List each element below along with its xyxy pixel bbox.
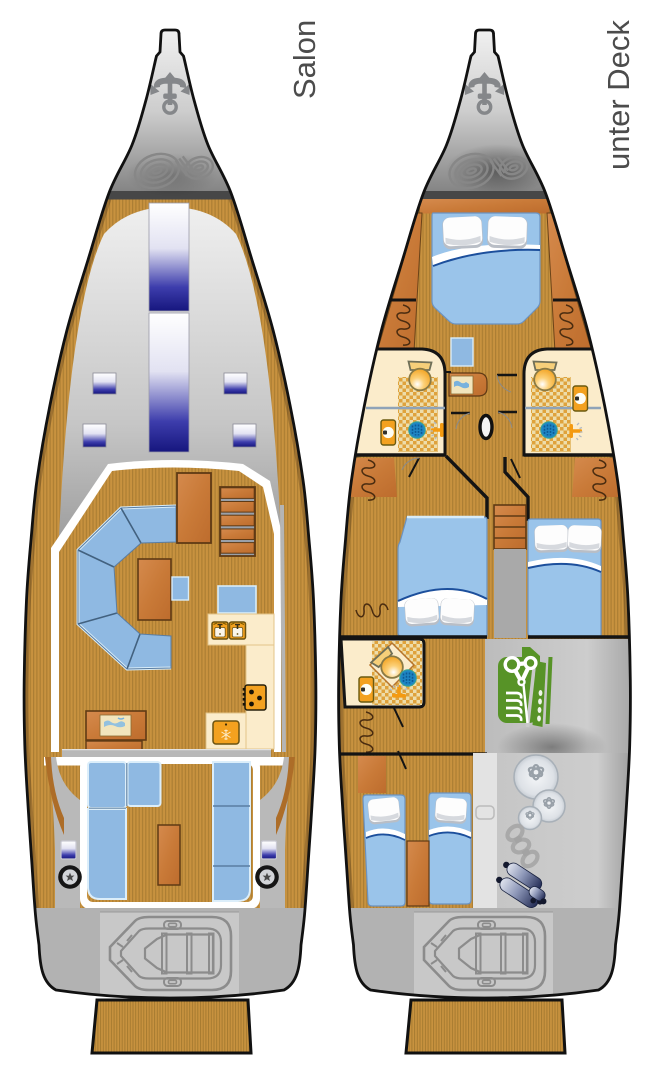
svg-text:unter Deck: unter Deck	[601, 20, 636, 170]
svg-text:Salon: Salon	[287, 20, 322, 99]
